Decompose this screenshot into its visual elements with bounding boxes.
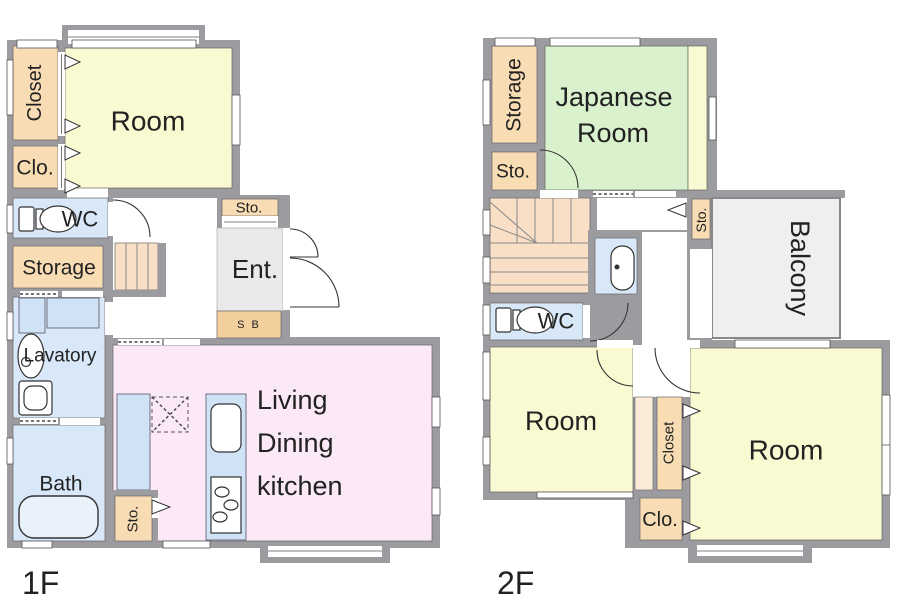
stairs-bottom-wall <box>107 290 166 297</box>
balcony-sash-window <box>735 340 830 348</box>
window <box>7 205 13 233</box>
window <box>550 38 640 46</box>
window <box>495 38 535 46</box>
floor-label-2f: 2F <box>497 565 534 601</box>
lavatory-label: Lavatory <box>24 346 97 367</box>
balcony-top-wall <box>707 190 845 198</box>
left-room-door-opening <box>597 340 633 348</box>
window <box>7 438 13 464</box>
window <box>432 488 440 515</box>
burner <box>215 487 229 497</box>
window <box>483 80 490 125</box>
balcony-label: Balcony <box>785 220 815 317</box>
closet-label: Closet <box>24 64 46 121</box>
stairs-side-wall <box>158 243 166 297</box>
ldk-label-line1: Living <box>257 385 328 415</box>
opening <box>62 291 103 297</box>
bay-window-bottom-glass <box>268 546 382 557</box>
bay-window-2f-glass <box>697 545 803 556</box>
opening <box>635 191 676 197</box>
clo-label-2f: Clo. <box>642 509 678 531</box>
clo-label: Clo. <box>16 157 53 180</box>
burner <box>213 512 227 522</box>
front-door-opening <box>283 228 290 310</box>
kitchen-side-counter <box>117 394 150 490</box>
window <box>483 257 490 283</box>
storage-label-1f: Storage <box>22 257 96 280</box>
floor-label-1f: 1F <box>22 565 59 601</box>
floor-plan-page: Closet Clo. Room WC Storage Lavatory Bat… <box>0 0 900 615</box>
room-label-2f-left: Room <box>525 406 597 436</box>
washing-machine-icon <box>19 381 52 415</box>
room-label-2f-right: Room <box>749 435 824 466</box>
window <box>483 210 490 235</box>
window <box>72 40 196 48</box>
storage-label-2f: Storage <box>503 58 526 132</box>
window <box>7 60 13 115</box>
closet-label-2f: Closet <box>661 421 678 464</box>
window <box>483 305 490 335</box>
balcony-area <box>712 198 840 338</box>
window <box>7 312 13 340</box>
wc-label-2f: WC <box>538 309 575 334</box>
hall-2f-floor <box>690 249 712 338</box>
window <box>22 541 52 548</box>
window <box>483 352 490 400</box>
shoe-box-label: S B <box>237 319 261 331</box>
window <box>483 437 490 465</box>
left-room-closet <box>635 397 653 490</box>
front-door-arc-large <box>290 258 339 307</box>
wc-door-opening <box>108 202 113 236</box>
window <box>17 40 57 48</box>
bath-door-opening <box>60 418 100 425</box>
window <box>537 492 633 498</box>
japanese-room-label-line2: Room <box>577 118 649 148</box>
sto-hall-label: Sto. <box>693 208 709 233</box>
kitchen-sink <box>211 404 241 452</box>
hall-2f-floor <box>642 232 687 345</box>
stairs-2f <box>490 198 590 293</box>
front-door-arc-small <box>290 229 318 257</box>
sto-upper-label: Sto. <box>496 162 530 183</box>
basin-faucet <box>615 265 620 270</box>
bathtub-icon <box>19 496 98 538</box>
wc2f-door-opening <box>583 305 590 338</box>
window <box>163 541 210 548</box>
vanity-basin-icon <box>611 246 634 290</box>
lavatory-door-opening <box>105 302 113 335</box>
floor-1f: Closet Clo. Room WC Storage Lavatory Bat… <box>7 25 440 601</box>
ldk-label-line2: Dining <box>257 428 334 458</box>
burner <box>224 500 238 510</box>
japanese-room-label-line1: Japanese <box>555 82 672 112</box>
japanese-room-board-strip <box>688 46 707 190</box>
bath-label: Bath <box>39 473 82 496</box>
window <box>232 95 240 145</box>
window <box>709 97 716 140</box>
floor-2f: Storage Sto. Japanese Room Sto. Balcony … <box>483 38 890 601</box>
right-room-door-opening <box>655 340 700 348</box>
opening <box>164 339 200 345</box>
floor-plan-canvas: Closet Clo. Room WC Storage Lavatory Bat… <box>0 0 900 615</box>
window <box>432 397 440 427</box>
wc-label-1f: WC <box>62 207 99 232</box>
ldk-label-line3: kitchen <box>257 471 343 501</box>
japanese-door-opening <box>540 190 578 198</box>
room-label-1f: Room <box>111 106 186 137</box>
hall-2f-floor <box>597 198 687 230</box>
sto-bath-label: Sto. <box>125 506 142 533</box>
ent-label: Ent. <box>232 254 278 284</box>
sto-ent-label: Sto. <box>236 200 263 217</box>
